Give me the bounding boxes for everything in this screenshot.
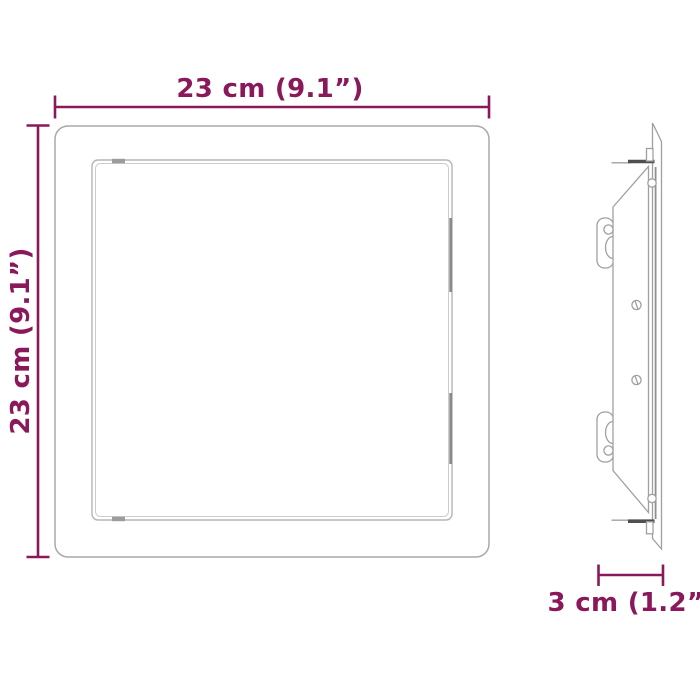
- door-latch-mark-top: [112, 159, 125, 163]
- door-hinge-segment-bottom: [449, 393, 452, 464]
- height-dimension-label: 23 cm (9.1”): [8, 247, 34, 434]
- side-clip-pivot-top: [604, 225, 613, 234]
- depth-dimension-label: 3 cm (1.2”): [548, 590, 700, 616]
- side-view: [597, 123, 662, 549]
- front-view: [55, 126, 489, 557]
- side-bracket-top: [612, 149, 657, 188]
- door-latch-mark-bottom: [112, 517, 125, 521]
- door-hinge-segment-top: [449, 218, 452, 292]
- product-dimension-diagram: 23 cm (9.1”) 23 cm (9.1”) 3 cm (1.2”): [0, 0, 700, 700]
- depth-dimension-line: [599, 565, 664, 587]
- panel-outer-frame: [55, 126, 489, 557]
- width-dimension-label: 23 cm (9.1”): [176, 76, 363, 102]
- side-frame-body: [613, 167, 649, 513]
- side-bracket-bottom: [612, 494, 657, 534]
- side-clip-pivot-bottom: [604, 446, 613, 455]
